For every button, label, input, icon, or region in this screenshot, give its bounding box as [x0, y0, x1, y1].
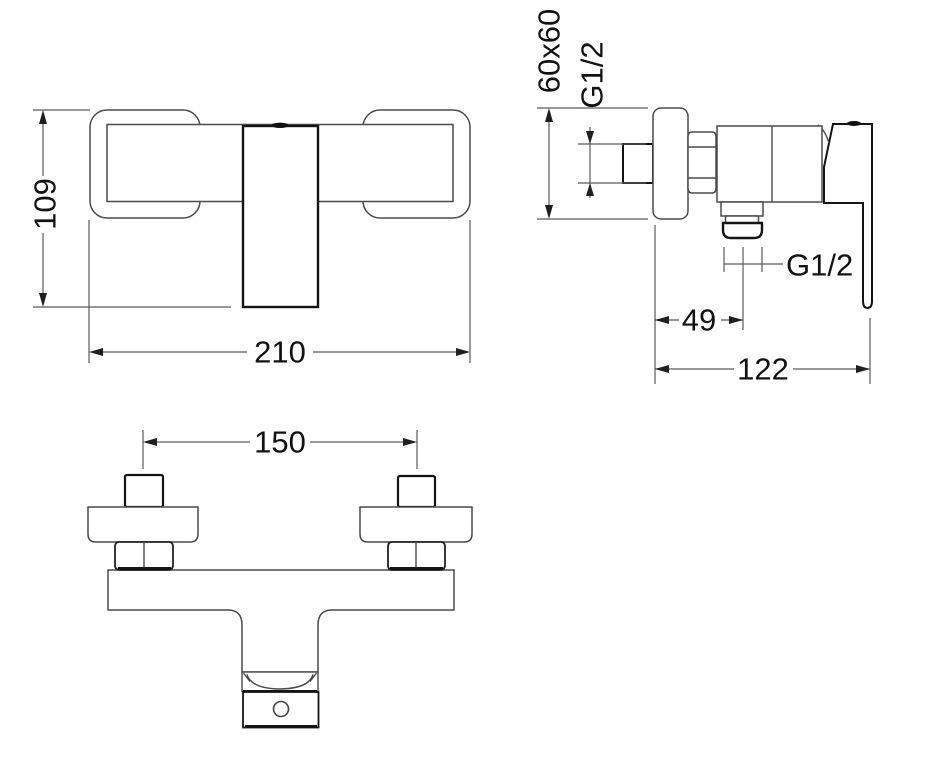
- dim-label-plate-size: 60x60: [532, 9, 567, 93]
- shower-mixer-drawing: 109 210 60x60: [0, 0, 929, 758]
- side-hex-nut: [688, 132, 716, 193]
- side-view: 60x60 G1/2 G1/2 49 122: [532, 9, 873, 387]
- front-mixer-body: [243, 126, 318, 307]
- front-view-geometry: [90, 110, 470, 307]
- bottom-right-inlet-stub: [398, 476, 435, 507]
- side-outlet-flange: [721, 202, 763, 216]
- dim-label-inlet-thread: G1/2: [575, 41, 610, 108]
- dim-label-hole-spacing: 150: [254, 425, 306, 460]
- bottom-left-plate: [88, 507, 198, 542]
- dim-label-height: 109: [28, 178, 63, 230]
- dim-label-outlet-offset: 49: [682, 303, 716, 338]
- bottom-view-dimensions: 150: [143, 425, 417, 470]
- front-cartridge-cap: [272, 123, 289, 128]
- side-wall-plate: [653, 108, 688, 219]
- technical-drawing-canvas: 109 210 60x60: [0, 0, 929, 758]
- dim-label-depth: 122: [737, 352, 789, 387]
- bottom-handle-hole: [274, 702, 289, 717]
- dim-label-width: 210: [254, 335, 306, 370]
- side-handle-screw: [847, 121, 861, 126]
- front-view: 109 210: [28, 110, 471, 370]
- bottom-left-inlet-stub: [125, 475, 163, 507]
- bottom-view: 150: [88, 425, 472, 728]
- side-inlet-stub: [623, 144, 653, 183]
- side-outlet-nozzle: [723, 223, 762, 238]
- side-valve-body: [717, 126, 822, 202]
- bottom-body-and-spout: [108, 570, 454, 672]
- bottom-right-plate: [360, 507, 472, 542]
- bottom-view-geometry: [88, 475, 472, 728]
- dim-label-outlet-thread: G1/2: [786, 248, 853, 283]
